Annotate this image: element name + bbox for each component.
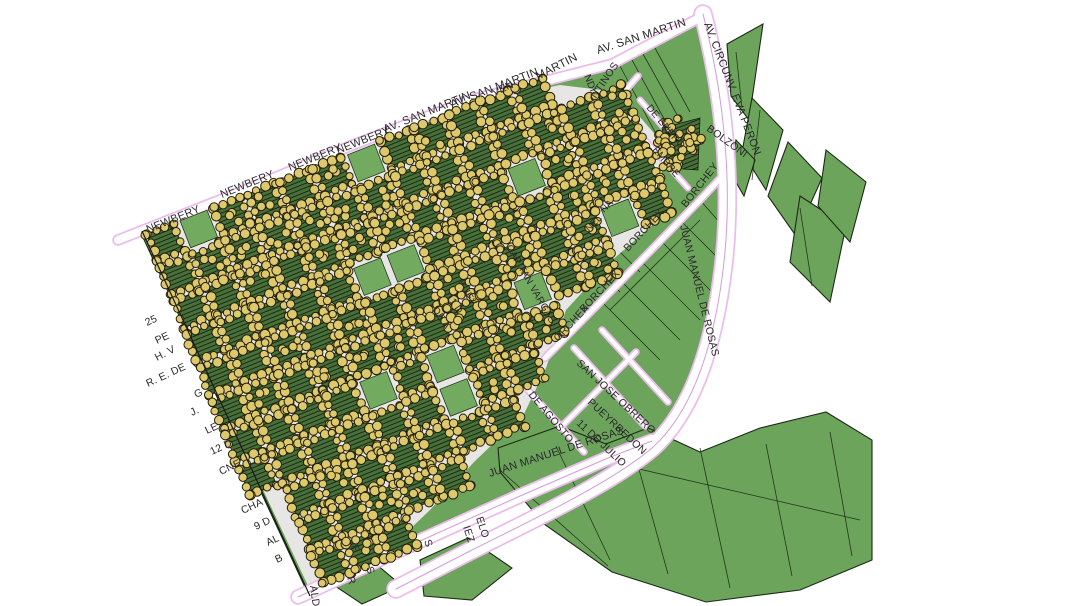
poi-dot [171,250,179,258]
poi-dot [353,371,361,379]
poi-dot [423,422,430,429]
poi-dot [417,353,426,362]
poi-dot [208,398,216,406]
poi-dot [307,350,316,359]
poi-dot [638,210,646,218]
poi-dot [470,276,480,286]
poi-dot [560,181,569,190]
poi-dot [233,310,241,318]
poi-dot [402,497,410,505]
poi-dot [400,411,408,419]
poi-dot [235,217,243,225]
poi-dot [358,504,367,513]
poi-dot [512,403,520,411]
poi-dot [246,393,253,400]
poi-dot [433,156,441,164]
poi-dot [346,353,354,361]
poi-dot [564,123,574,133]
poi-dot [241,383,251,393]
poi-dot [246,277,254,285]
poi-dot [210,302,218,310]
poi-dot [255,400,263,408]
poi-dot [351,284,360,293]
poi-dot [226,391,233,398]
poi-dot [311,511,320,520]
poi-dot [480,106,488,114]
poi-dot [283,486,291,494]
poi-dot [172,228,180,236]
poi-dot [379,186,387,194]
poi-dot [444,274,452,282]
poi-dot [537,248,546,257]
poi-dot [336,230,346,240]
poi-dot [406,157,413,164]
poi-dot [233,359,242,368]
poi-dot [270,356,279,365]
poi-dot [253,265,260,272]
poi-dot [226,315,234,323]
poi-dot [386,553,396,563]
poi-dot [583,171,591,179]
poi-dot [363,539,371,547]
poi-dot [253,313,262,322]
poi-dot [404,203,413,212]
poi-dot [476,311,485,320]
poi-dot [493,335,501,343]
poi-dot [249,302,259,312]
poi-dot [346,303,354,311]
poi-dot [543,189,551,197]
poi-dot [497,121,504,128]
poi-dot [348,362,358,372]
poi-dot [551,186,558,193]
poi-dot [600,187,608,195]
poi-dot [289,342,297,350]
poi-dot [585,271,594,280]
poi-dot [552,155,560,163]
poi-dot [265,220,274,229]
map-canvas[interactable]: NEWBERYNEWBERYNEWBERYNEWBERYAV. SAN MART… [0,0,1076,606]
poi-dot [192,260,200,268]
poi-dot [408,213,415,220]
poi-dot [624,98,632,106]
poi-dot [288,405,297,414]
poi-dot [468,413,475,420]
poi-dot [594,100,603,109]
poi-dot [380,214,388,222]
poi-dot [468,268,476,276]
poi-dot [631,191,640,200]
poi-dot [505,214,513,222]
poi-dot [305,447,313,455]
poi-dot [582,210,591,219]
poi-dot [410,394,419,403]
poi-dot [211,211,221,221]
poi-dot [419,189,427,197]
poi-dot [395,284,404,293]
poi-dot [551,261,560,270]
poi-dot [287,250,296,259]
poi-dot [364,203,373,212]
poi-dot [355,319,363,327]
poi-dot [476,437,485,446]
poi-dot [266,297,275,306]
poi-dot [435,484,445,494]
poi-dot [200,255,208,263]
poi-dot [537,220,545,228]
poi-dot [632,115,639,122]
poi-dot [280,381,288,389]
poi-dot [245,314,254,323]
poi-dot [382,445,390,453]
poi-dot [602,179,610,187]
poi-dot [208,255,216,263]
poi-dot [258,232,267,241]
poi-dot [429,466,438,475]
poi-dot [535,358,543,366]
poi-dot [544,336,552,344]
poi-dot [288,309,298,319]
poi-dot [335,425,344,434]
poi-dot [608,92,616,100]
poi-dot [424,233,434,243]
poi-dot [343,267,350,274]
poi-dot [459,414,466,421]
poi-dot [564,155,572,163]
poi-dot [216,223,225,232]
poi-dot [524,216,533,225]
poi-dot [288,280,296,288]
poi-dot [285,444,294,453]
poi-dot [360,492,370,502]
poi-dot [397,343,405,351]
poi-dot [274,217,283,226]
poi-dot [375,501,383,509]
poi-dot [345,259,354,268]
poi-dot [293,219,302,228]
poi-dot [355,233,363,241]
poi-dot [184,340,193,349]
poi-dot [311,436,319,444]
poi-dot [394,334,402,342]
poi-dot [490,425,498,433]
poi-dot [210,203,219,212]
poi-dot [586,249,594,257]
poi-dot [590,258,598,266]
poi-dot [348,459,358,469]
poi-dot [310,240,319,249]
poi-dot [428,167,438,177]
poi-dot [290,482,299,491]
poi-dot [501,351,509,359]
poi-dot [351,565,359,573]
poi-dot [399,293,407,301]
poi-dot [244,191,252,199]
poi-dot [218,327,227,336]
poi-dot [405,523,412,530]
poi-dot [408,409,415,416]
poi-dot [324,172,332,180]
poi-dot [438,191,446,199]
poi-dot [361,298,370,307]
poi-dot [316,278,324,286]
poi-dot [245,490,254,499]
poi-dot [379,291,387,299]
poi-dot [476,137,484,145]
poi-dot [542,325,550,333]
poi-dot [323,197,333,207]
poi-dot [351,389,360,398]
poi-dot [472,178,479,185]
poi-dot [393,325,402,334]
poi-dot [330,410,338,418]
poi-dot [306,216,314,224]
poi-dot [211,407,218,414]
poi-dot [459,349,467,357]
poi-dot [405,476,414,485]
poi-dot [396,189,405,198]
poi-dot [436,454,444,462]
poi-dot [542,169,552,179]
poi-dot [421,137,429,145]
poi-dot [201,283,210,292]
poi-dot [369,238,378,247]
poi-dot [631,131,639,139]
poi-dot [414,328,423,337]
poi-dot [374,176,382,184]
poi-dot [296,230,304,238]
poi-dot [165,258,173,266]
poi-dot [257,202,265,210]
poi-dot [530,349,538,357]
poi-dot [351,342,360,351]
poi-dot [221,236,230,245]
poi-dot [228,450,236,458]
poi-dot [382,201,390,209]
poi-dot [316,220,324,228]
poi-dot [448,489,458,499]
poi-dot [485,117,494,126]
poi-dot [530,231,540,241]
poi-dot [501,203,509,211]
poi-dot [697,134,705,142]
poi-dot [396,480,404,488]
poi-dot [378,408,386,416]
poi-dot [279,284,287,292]
poi-dot [540,82,550,92]
poi-dot [337,551,345,559]
poi-dot [413,278,422,287]
poi-dot [282,229,290,237]
poi-dot [449,419,458,428]
poi-dot [202,353,211,362]
poi-dot [195,269,203,277]
poi-dot [312,317,321,326]
poi-dot [217,318,225,326]
poi-dot [509,298,518,307]
poi-dot [337,306,346,315]
poi-dot [361,531,369,539]
poi-dot [342,191,351,200]
poi-dot [201,322,208,329]
poi-dot [333,320,343,330]
poi-dot [283,196,291,204]
poi-dot [308,203,316,211]
poi-dot [517,219,525,227]
poi-dot [341,344,349,352]
poi-dot [432,397,440,405]
poi-dot [501,159,511,169]
poi-dot [688,125,695,132]
poi-dot [429,341,439,351]
poi-dot [472,256,479,263]
poi-dot [345,322,353,330]
poi-dot [161,280,170,289]
poi-dot [213,357,223,367]
poi-dot [398,238,406,246]
poi-dot [508,123,516,131]
poi-dot [497,149,507,159]
poi-dot [369,412,377,420]
poi-dot [557,105,566,114]
poi-dot [576,148,584,156]
poi-dot [264,414,273,423]
poi-dot [436,140,444,148]
poi-dot [291,414,299,422]
poi-dot [309,262,317,270]
poi-dot [323,297,331,305]
poi-dot [395,219,403,227]
poi-dot [502,281,512,291]
poi-dot [634,201,642,209]
poi-dot [316,547,324,555]
poi-dot [432,223,442,233]
poi-dot [346,173,353,180]
poi-dot [445,187,455,197]
poi-dot [365,307,375,317]
poi-dot [364,251,372,259]
poi-dot [402,544,412,554]
poi-dot [430,117,438,125]
poi-dot [355,448,362,455]
poi-dot [216,262,224,270]
poi-dot [229,349,238,358]
poi-dot [377,454,387,464]
poi-dot [663,198,672,207]
poi-dot [261,339,269,347]
poi-dot [581,261,589,269]
poi-dot [272,460,282,470]
poi-dot [308,457,316,465]
poi-dot [522,313,530,321]
poi-dot [526,322,534,330]
poi-dot [382,349,390,357]
poi-dot [274,369,284,379]
poi-dot [285,494,294,503]
poi-dot [316,472,325,481]
poi-dot [388,210,397,219]
poi-dot [242,243,250,251]
poi-dot [534,339,542,347]
poi-dot [386,453,395,462]
poi-dot [389,367,396,374]
poi-dot [370,218,380,228]
poi-dot [252,379,260,387]
poi-dot [478,300,487,309]
poi-dot [519,207,528,216]
poi-dot [272,266,282,276]
poi-dot [571,137,580,146]
poi-dot [291,210,299,218]
poi-dot [622,136,630,144]
poi-dot [446,121,456,131]
poi-dot [408,317,416,325]
poi-dot [255,223,264,232]
poi-dot [389,464,397,472]
poi-dot [323,490,330,497]
poi-dot [302,342,311,351]
map-viewport[interactable]: NEWBERYNEWBERYNEWBERYNEWBERYAV. SAN MART… [0,0,1076,606]
poi-dot [306,396,313,403]
poi-dot [573,285,582,294]
poi-dot [309,359,317,367]
poi-dot [478,197,486,205]
poi-dot [467,141,476,150]
poi-dot [387,497,395,505]
poi-dot [296,324,303,331]
poi-dot [564,221,572,229]
poi-dot [488,325,497,334]
poi-dot [261,454,268,461]
poi-dot [368,510,378,520]
poi-dot [686,139,694,147]
poi-dot [342,163,349,170]
poi-dot [545,148,554,157]
poi-dot [382,320,390,328]
poi-dot [281,347,289,355]
poi-dot [301,315,308,322]
poi-dot [320,285,329,294]
poi-dot [592,238,600,246]
poi-dot [361,194,368,201]
poi-dot [661,190,669,198]
poi-dot [267,346,275,354]
poi-dot [514,384,524,394]
poi-dot [484,210,494,220]
poi-dot [326,545,334,553]
poi-dot [218,275,228,285]
poi-dot [406,329,414,337]
poi-dot [327,471,335,479]
poi-dot [300,333,307,340]
poi-dot [529,330,538,339]
poi-dot [618,159,627,168]
poi-dot [354,224,361,231]
poi-dot [584,242,592,250]
poi-dot [601,158,609,166]
poi-dot [199,248,207,256]
poi-dot [370,486,380,496]
poi-dot [260,378,268,386]
poi-dot [382,543,390,551]
poi-dot [412,223,420,231]
poi-dot [191,326,199,334]
poi-dot [312,173,322,183]
poi-dot [384,522,393,531]
poi-dot [258,426,268,436]
poi-dot [404,506,413,515]
poi-dot [464,257,473,266]
